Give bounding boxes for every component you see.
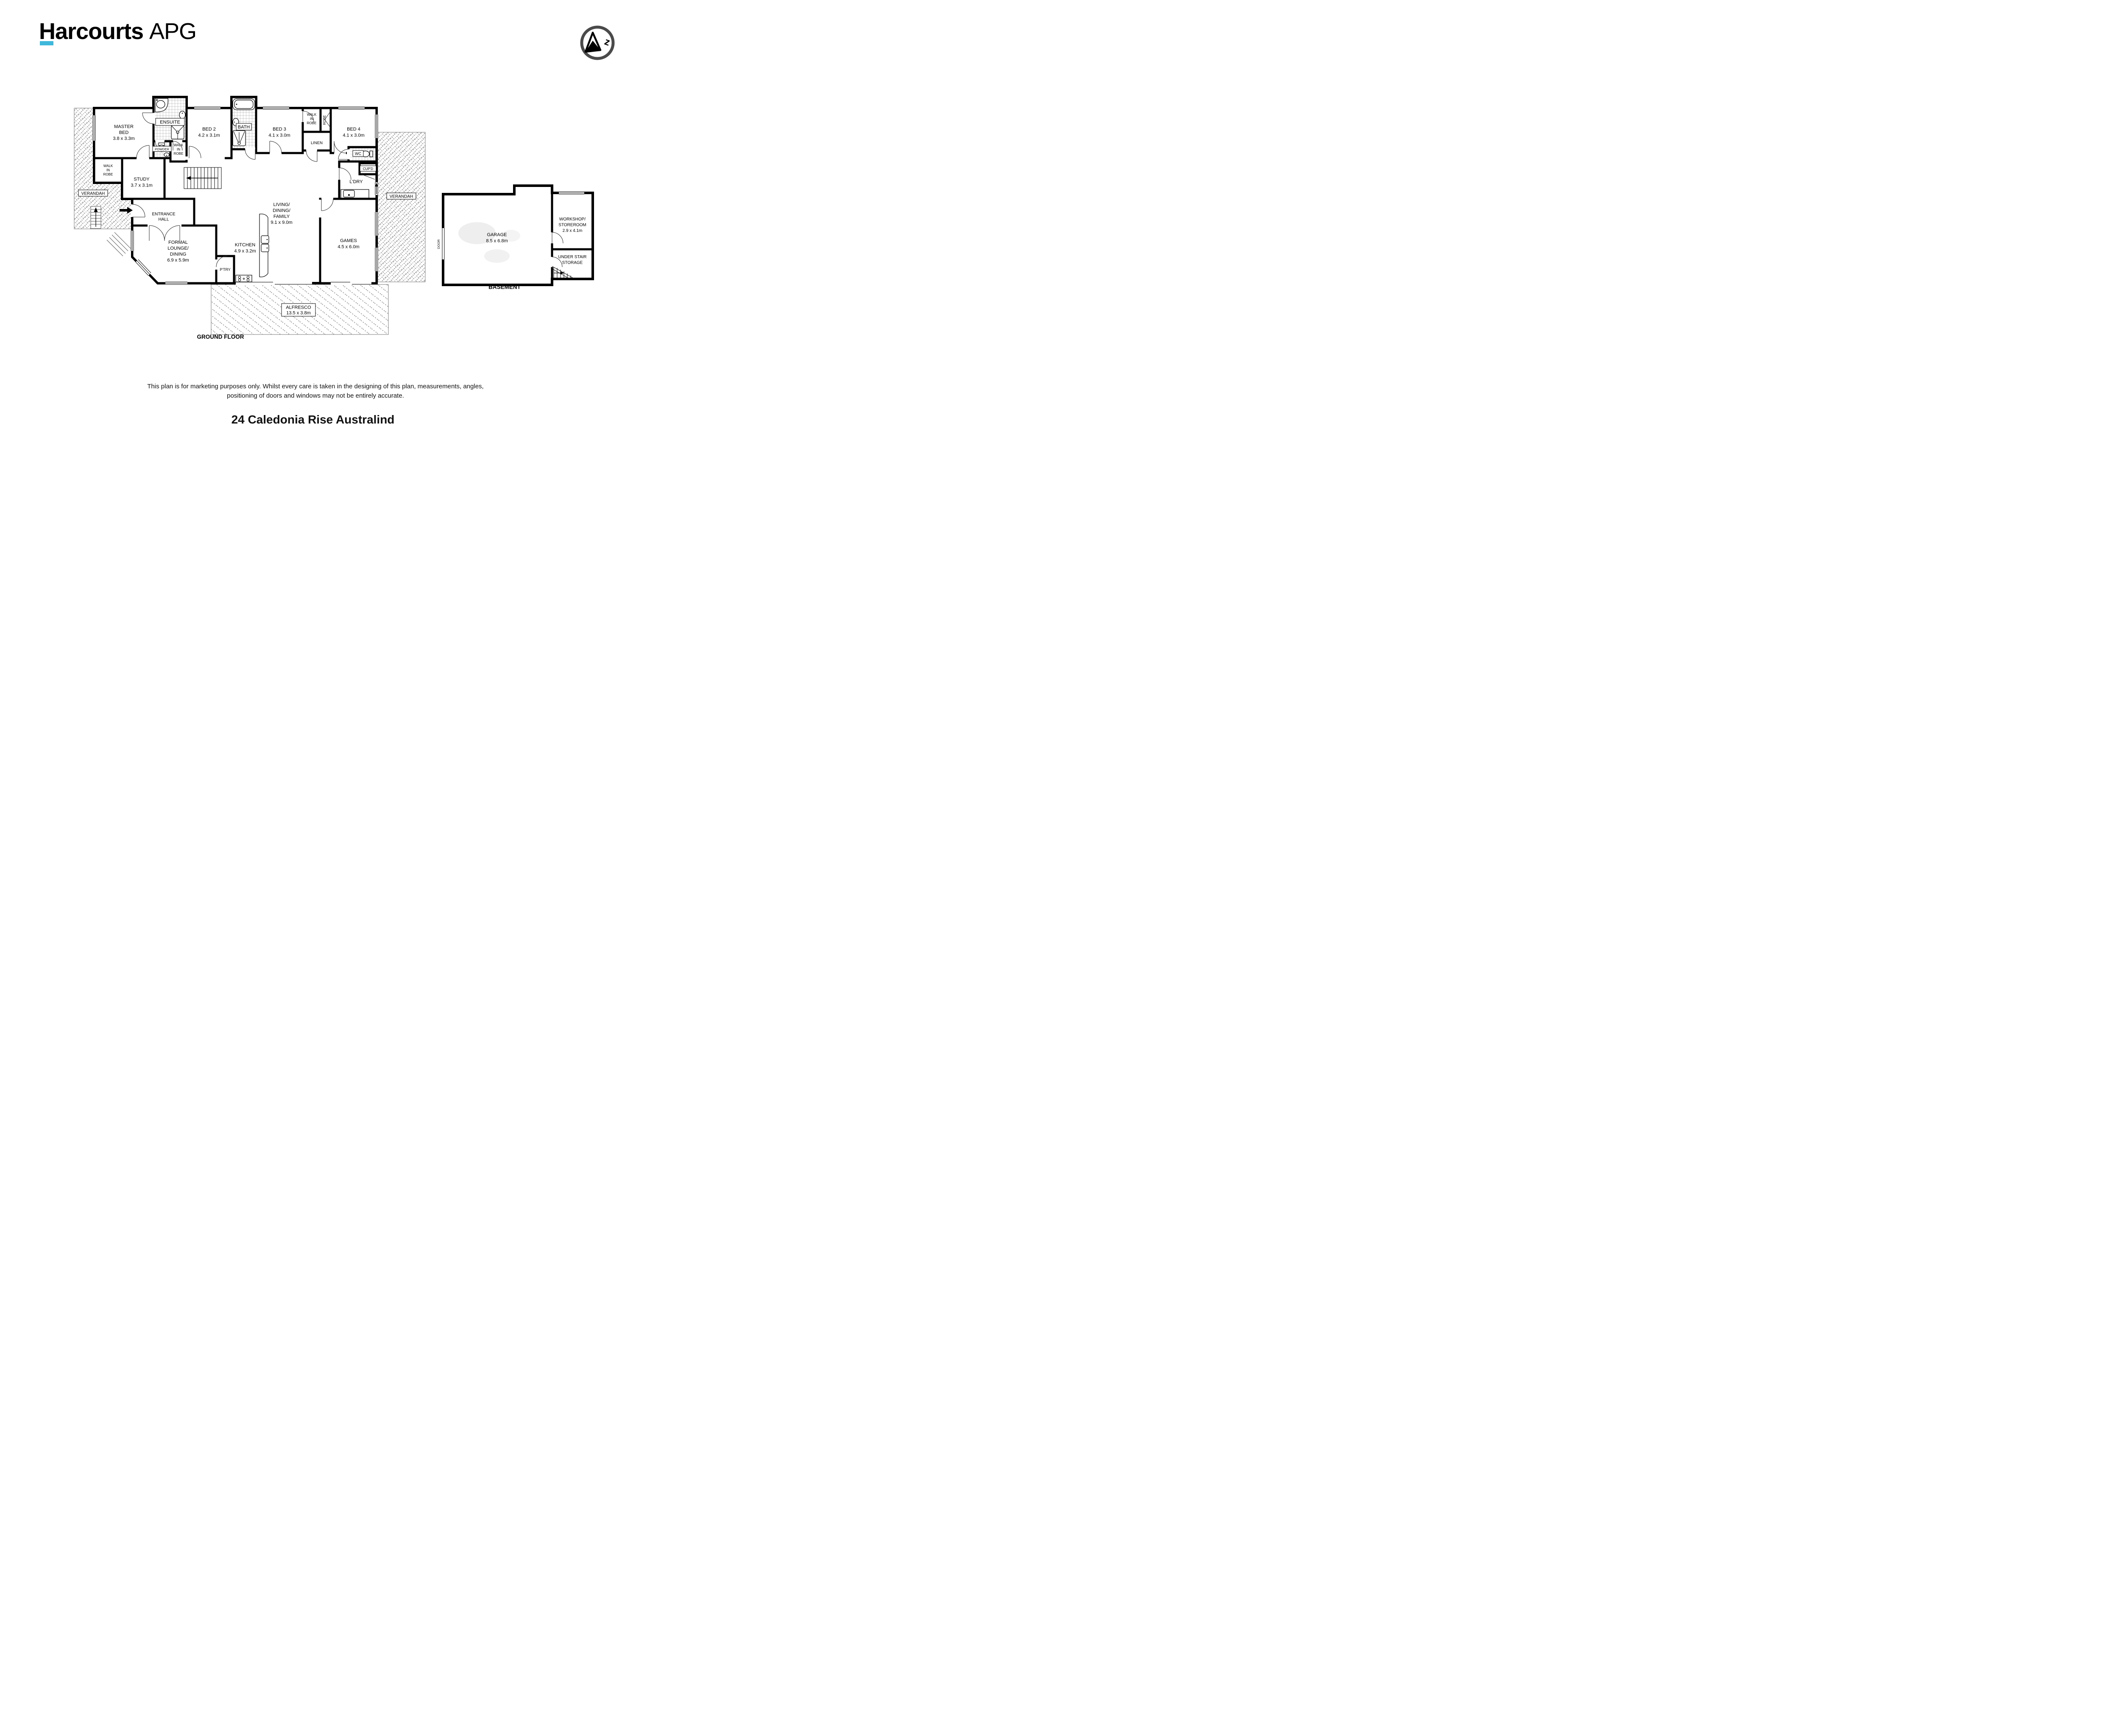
- disclaimer-line1: This plan is for marketing purposes only…: [147, 383, 483, 390]
- room-label-wir-bed3: WALK: [307, 113, 317, 117]
- room-label-powder: POWDER: [155, 148, 169, 151]
- room-label-alfresco-dims: 13.5 x 3.8m: [286, 311, 310, 316]
- room-label-robe: ROBE: [323, 115, 326, 125]
- brand-primary: Harcourts: [39, 19, 143, 44]
- floorplan-svg: Harcourts APG z: [0, 0, 651, 434]
- bath-shower-icon: [233, 131, 245, 146]
- svg-text:STORAGE: STORAGE: [562, 261, 583, 265]
- room-label-wir-left: WALK: [103, 164, 113, 168]
- room-label-cupd: CUP'D: [363, 167, 373, 171]
- svg-text:ROBE: ROBE: [103, 173, 113, 176]
- svg-text:ROBE: ROBE: [174, 152, 184, 156]
- svg-text:3.8 x 3.3m: 3.8 x 3.3m: [113, 136, 134, 141]
- powder-basin-icon: [164, 153, 169, 157]
- svg-text:4.5 x 6.0m: 4.5 x 6.0m: [338, 245, 359, 250]
- room-label-master: MASTER: [114, 124, 134, 129]
- verandah-right-area: [378, 132, 425, 282]
- room-label-ldry: L'DRY: [349, 179, 363, 184]
- room-label-bath: BATH: [238, 125, 250, 130]
- room-label-lounge: FORMAL: [168, 240, 188, 245]
- disclaimer-line2: positioning of doors and windows may not…: [227, 392, 404, 399]
- svg-text:4.1 x 3.0m: 4.1 x 3.0m: [268, 133, 290, 138]
- svg-text:4.1 x 3.0m: 4.1 x 3.0m: [343, 133, 364, 138]
- room-label-kitchen: KITCHEN: [235, 242, 255, 248]
- brand-secondary: APG: [149, 19, 196, 44]
- svg-text:DINING/: DINING/: [273, 208, 291, 213]
- svg-text:IN: IN: [106, 168, 110, 172]
- brand-logo: Harcourts APG: [39, 19, 196, 45]
- address-title: 24 Caledonia Rise Australind: [232, 413, 395, 426]
- porch-steps: [107, 232, 131, 256]
- room-label-bed2: BED 2: [202, 127, 216, 132]
- room-label-games: GAMES: [340, 238, 357, 243]
- verandah-stairs: [91, 206, 101, 228]
- room-label-linen: LINEN: [311, 141, 323, 145]
- basement-plan: DOOR GARAGE 8.5 x 6.8m WORKSHOP/ STORERO…: [437, 186, 593, 290]
- svg-text:DINING: DINING: [170, 252, 187, 257]
- room-label-verandah-right: VERANDAH: [390, 195, 413, 199]
- ensuite-basin-icon: [179, 111, 185, 119]
- room-label-garage: GARAGE: [487, 232, 507, 237]
- svg-text:IN: IN: [177, 148, 180, 151]
- basement-caption: BASEMENT: [488, 284, 521, 290]
- ground-floor-plan: ENSUITE POWDER BATH WC CUP'D VERANDAH VE…: [74, 97, 425, 340]
- room-label-door: DOOR: [437, 239, 441, 249]
- laundry-trough-icon: [341, 189, 369, 198]
- svg-text:LOUNGE/: LOUNGE/: [167, 246, 189, 251]
- svg-text:BED: BED: [119, 130, 129, 135]
- room-label-under-stair: UNDER STAIR: [558, 255, 586, 259]
- svg-text:2.9 x 4.1m: 2.9 x 4.1m: [563, 228, 583, 233]
- compass-icon: z: [582, 27, 613, 59]
- disclaimer: This plan is for marketing purposes only…: [147, 383, 483, 399]
- room-label-wir-hall: WALK: [174, 143, 184, 147]
- room-label-living: LIVING/: [273, 202, 290, 207]
- svg-text:ROBE: ROBE: [307, 121, 317, 125]
- svg-text:STOREROOM: STOREROOM: [558, 223, 586, 228]
- bath-tub-icon: [233, 99, 255, 110]
- svg-text:3.7 x 3.1m: 3.7 x 3.1m: [131, 183, 152, 188]
- svg-text:HALL: HALL: [158, 217, 169, 222]
- svg-text:4.9 x 3.2m: 4.9 x 3.2m: [234, 249, 256, 254]
- room-label-entrance: ENTRANCE: [152, 212, 175, 217]
- svg-text:9.1 x 9.0m: 9.1 x 9.0m: [271, 220, 292, 225]
- svg-text:8.5 x 6.8m: 8.5 x 6.8m: [486, 239, 508, 244]
- ground-floor-caption: GROUND FLOOR: [197, 334, 244, 340]
- room-label-wc: WC: [355, 152, 361, 156]
- room-label-bed3: BED 3: [273, 127, 286, 132]
- room-label-ensuite: ENSUITE: [160, 120, 180, 125]
- svg-text:FAMILY: FAMILY: [273, 214, 290, 219]
- room-label-verandah-left: VERANDAH: [81, 192, 105, 196]
- cooktop-icon: [236, 275, 252, 282]
- ensuite-shower-icon: [171, 125, 184, 139]
- floorplan-page: Harcourts APG z: [0, 0, 651, 434]
- room-label-workshop: WORKSHOP/: [559, 217, 586, 222]
- room-label-study: STUDY: [134, 177, 150, 182]
- room-label-alfresco: ALFRESCO: [286, 305, 311, 310]
- svg-text:6.9 x 5.9m: 6.9 x 5.9m: [167, 258, 189, 263]
- kitchen-bench: [259, 214, 269, 277]
- brand-underline: [40, 41, 53, 45]
- room-label-ptry: P'TRY: [220, 268, 231, 272]
- room-label-bed4: BED 4: [347, 127, 360, 132]
- svg-text:IN: IN: [310, 117, 313, 121]
- svg-text:4.2 x 3.1m: 4.2 x 3.1m: [198, 133, 220, 138]
